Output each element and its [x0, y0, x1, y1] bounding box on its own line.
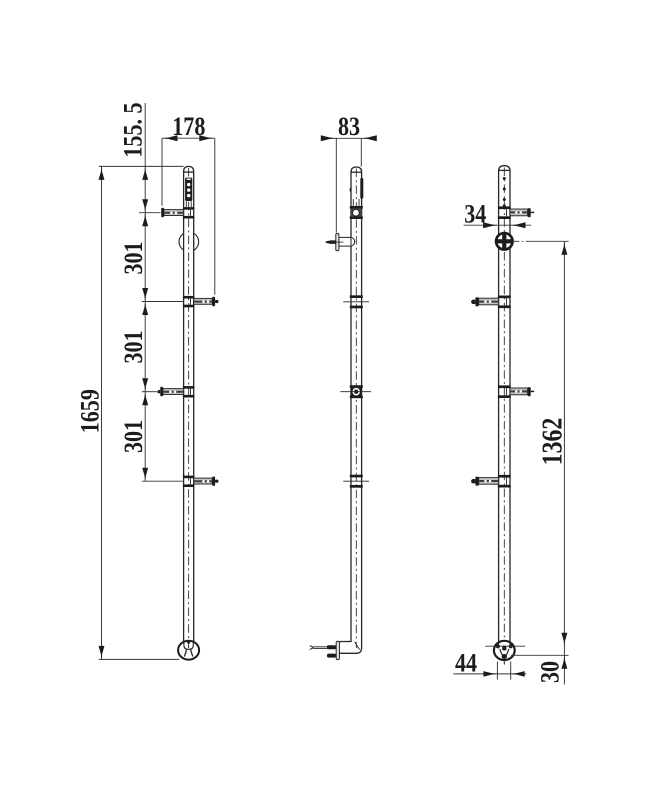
svg-text:301: 301	[120, 330, 148, 363]
svg-text:83: 83	[338, 114, 360, 142]
svg-text:301: 301	[120, 420, 148, 453]
svg-text:178: 178	[172, 114, 205, 142]
svg-text:155. 5: 155. 5	[120, 102, 148, 157]
svg-text:1362: 1362	[537, 418, 568, 466]
svg-text:1659: 1659	[77, 389, 105, 433]
svg-text:301: 301	[120, 241, 148, 274]
svg-text:30: 30	[537, 661, 565, 683]
svg-text:34: 34	[464, 201, 486, 229]
svg-text:44: 44	[455, 650, 477, 678]
